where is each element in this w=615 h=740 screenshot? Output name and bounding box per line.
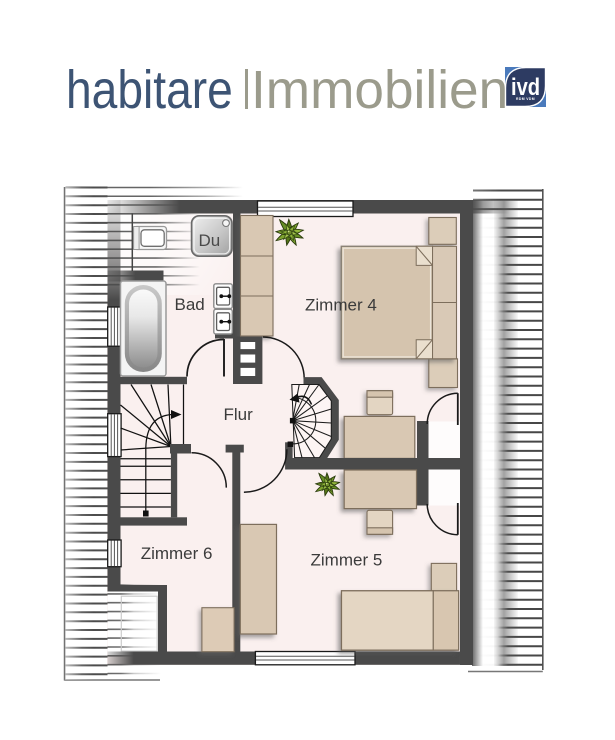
svg-text:Bad: Bad	[175, 295, 205, 314]
svg-text:Zimmer 4: Zimmer 4	[305, 296, 377, 315]
svg-text:Zimmer 5: Zimmer 5	[311, 551, 383, 570]
svg-text:Flur: Flur	[224, 405, 254, 424]
svg-text:Zimmer 6: Zimmer 6	[141, 544, 213, 563]
svg-text:Du: Du	[199, 231, 221, 250]
